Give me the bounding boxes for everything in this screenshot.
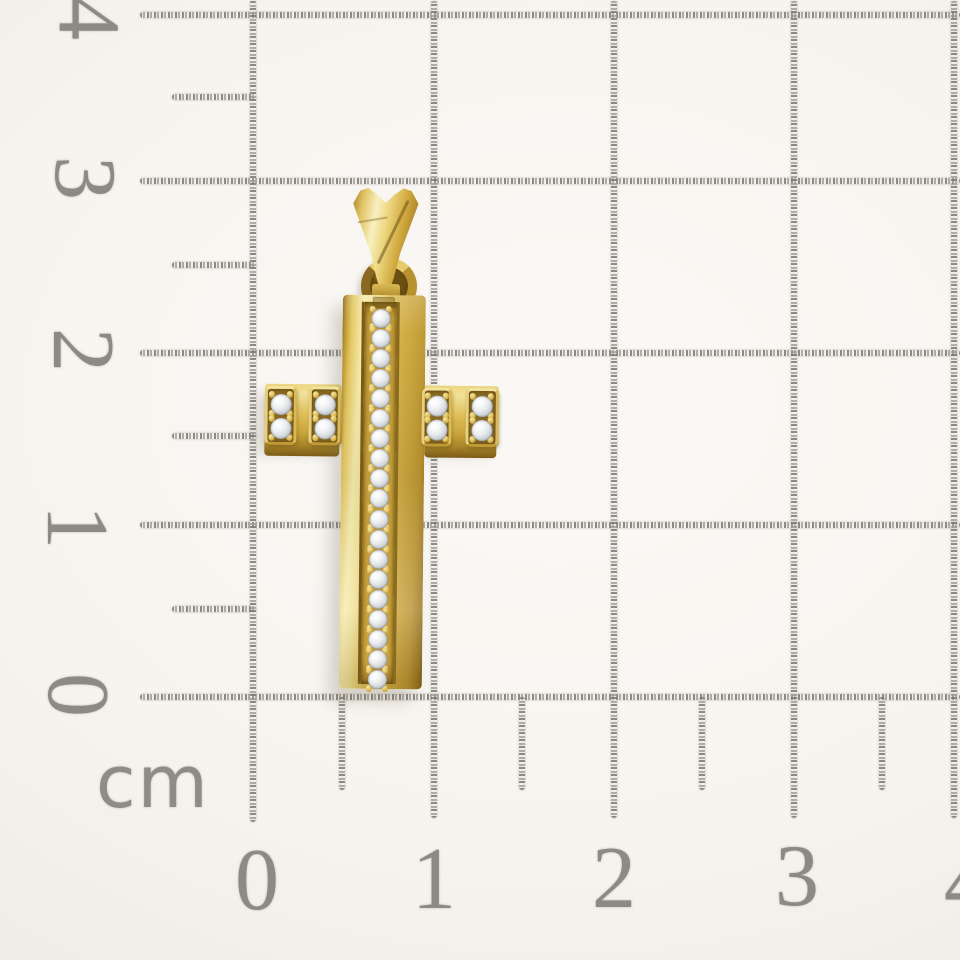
x-axis-minor-tick [339,697,345,790]
round-stone [371,328,390,347]
round-stone [371,308,390,327]
round-stone [426,395,447,416]
y-axis-label-0: 0 [32,650,122,740]
x-axis-minor-tick [519,697,525,790]
round-stone [368,610,387,629]
round-stone [369,489,388,508]
round-stone [369,469,388,488]
round-stone [367,670,386,689]
x-axis-minor-tick [699,697,705,790]
grid-line-vertical [791,0,797,818]
round-stone [370,409,389,428]
round-stone [270,417,291,438]
x-axis-label-2: 2 [569,834,659,924]
x-axis-label-0: 0 [212,836,302,926]
x-axis-minor-tick [879,697,885,790]
gold-cross-pendant [249,182,514,705]
round-stone [314,394,335,415]
y-axis-label-2: 2 [37,305,127,395]
round-stone [371,349,390,368]
grid-line-horizontal [140,12,960,18]
y-axis-label-4: 4 [43,0,133,63]
grid-line-vertical [611,0,617,818]
photo-scene: 4 3 2 1 0 cm 0 1 2 3 4 [0,0,960,960]
round-stone [368,570,387,589]
round-stone [314,418,335,439]
round-stone [370,429,389,448]
unit-label-cm: cm [96,737,186,827]
x-axis-label-1: 1 [389,835,479,925]
round-stone [369,550,388,569]
round-stone [426,419,447,440]
x-axis-label-4: 4 [921,839,960,929]
y-axis-minor-tick [172,262,256,268]
round-stone [370,369,389,388]
hallmark-stamp [373,297,395,308]
round-stone [471,419,492,440]
round-stone [471,395,492,416]
grid-line-vertical [951,0,957,818]
round-stone [369,529,388,548]
round-stone [270,393,291,414]
y-axis-label-1: 1 [31,482,121,572]
round-stone [368,630,387,649]
round-stone [368,590,387,609]
x-axis-label-3: 3 [752,832,842,922]
round-stone [369,509,388,528]
round-stone [367,650,386,669]
round-stone [370,449,389,468]
round-stone [370,389,389,408]
y-axis-minor-tick [172,606,256,612]
y-axis-minor-tick [172,94,256,100]
y-axis-minor-tick [172,433,256,439]
y-axis-label-3: 3 [39,133,129,223]
